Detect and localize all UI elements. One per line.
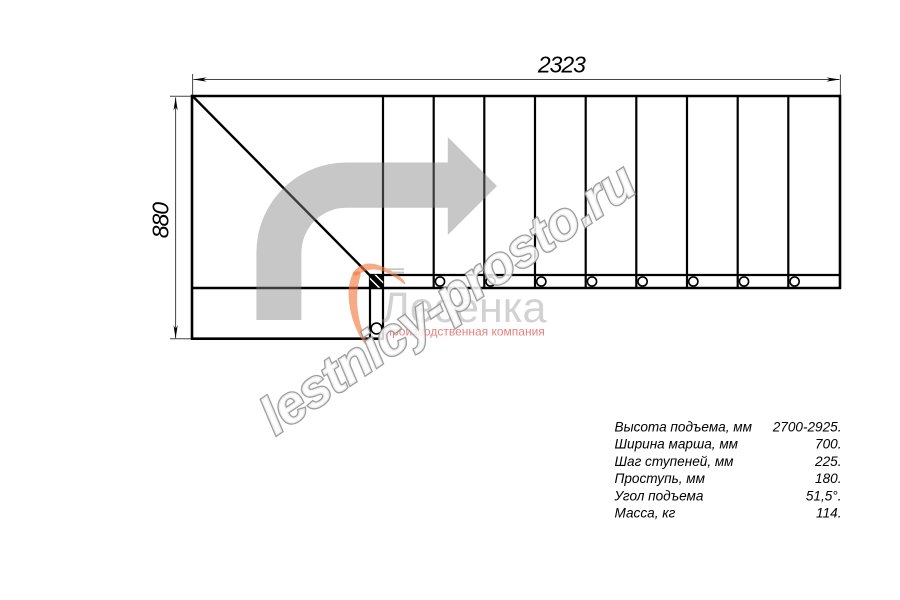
svg-text:Ширина марша, мм: Ширина марша, мм	[615, 437, 739, 452]
svg-text:51,5°.: 51,5°.	[806, 488, 842, 503]
svg-text:Высота подъема, мм: Высота подъема, мм	[615, 420, 753, 435]
svg-text:2700-2925.: 2700-2925.	[772, 420, 842, 435]
svg-text:Проступь, мм: Проступь, мм	[615, 471, 706, 486]
svg-text:225.: 225.	[814, 454, 841, 469]
svg-text:Угол подъема: Угол подъема	[614, 488, 704, 503]
svg-text:700.: 700.	[815, 437, 841, 452]
svg-text:180.: 180.	[815, 471, 841, 486]
svg-text:880: 880	[147, 202, 173, 239]
svg-text:Масса, кг: Масса, кг	[615, 506, 676, 521]
svg-text:Шаг ступеней, мм: Шаг ступеней, мм	[615, 454, 735, 469]
svg-text:114.: 114.	[816, 506, 841, 521]
svg-text:2323: 2323	[537, 52, 586, 78]
